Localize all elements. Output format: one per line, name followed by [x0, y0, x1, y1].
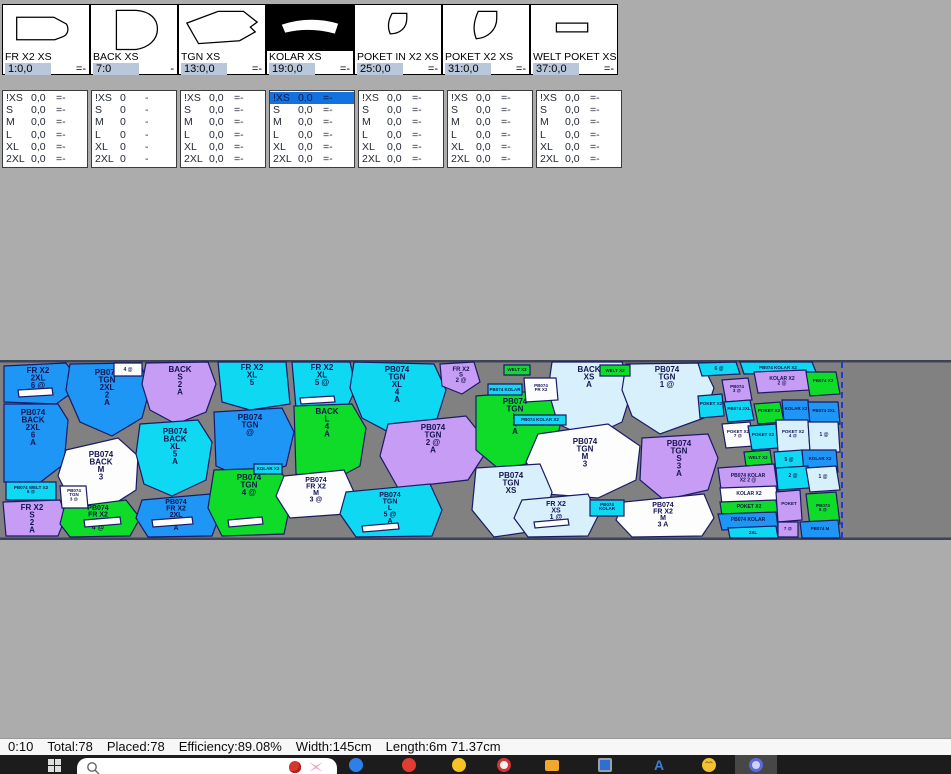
size-count-value: 0,0 [209, 116, 234, 128]
marker-piece[interactable]: PB074 KOLAR X2 [514, 415, 566, 425]
size-label: M [95, 116, 120, 128]
size-label: XL [451, 141, 476, 153]
size-count-suffix: =- [234, 141, 244, 153]
size-count-value: 0,0 [387, 104, 412, 116]
size-count-suffix: =- [56, 92, 66, 104]
svg-text:PB074KOLAR: PB074KOLAR [599, 502, 616, 511]
size-label: M [273, 116, 298, 128]
size-count-suffix: =- [590, 116, 600, 128]
marker-making-app-window: { "pieces_panel": { "cards": [ {"name":"… [0, 0, 951, 774]
size-column-1: !XS0-S0-M0-L0-XL0-2XL0- [91, 90, 177, 168]
marker-piece[interactable]: PB074 KOLAR [488, 384, 522, 395]
marker-piece[interactable]: 4 @ [114, 363, 142, 376]
size-label: XL [6, 141, 31, 153]
svg-text:2 @: 2 @ [788, 473, 797, 479]
piece-card-name: FR X2 XS [3, 51, 89, 63]
size-row-s[interactable]: S0,0=- [270, 104, 354, 116]
marker-piece[interactable]: PB074 2XL [724, 400, 754, 422]
size-label: 2XL [184, 153, 209, 165]
svg-text:POKET X2: POKET X2 [758, 408, 781, 413]
size-column-3: !XS0,0=-S0,0=-M0,0=-L0,0=-XL0,0=-2XL0,0=… [269, 90, 355, 168]
app-letter-a-icon[interactable]: A [652, 758, 666, 772]
size-count-suffix: =- [234, 116, 244, 128]
size-row-xl[interactable]: XL0,0=- [181, 141, 265, 153]
size-label: S [451, 104, 476, 116]
marker-piece[interactable]: WELT X2 [504, 365, 530, 375]
size-row-l[interactable]: L0,0=- [359, 129, 443, 141]
marker-piece[interactable]: PB074 M [800, 520, 840, 538]
size-label: !XS [540, 92, 565, 104]
marker-piece[interactable]: 7 @ [778, 522, 798, 537]
svg-text:KOLAR X2: KOLAR X2 [809, 456, 832, 461]
marker-piece[interactable]: PB074 WELT X26 @ [6, 482, 56, 500]
size-row-m[interactable]: M0,0=- [448, 116, 532, 128]
size-label: 2XL [362, 153, 387, 165]
marker-piece[interactable]: PB074TGN3 @ [60, 486, 88, 508]
svg-text:6 @: 6 @ [714, 366, 723, 372]
size-count-suffix: - [145, 129, 149, 141]
marker-piece[interactable]: KOLAR X2 [254, 464, 282, 474]
size-count-suffix: =- [323, 141, 333, 153]
size-count-value: 0,0 [209, 92, 234, 104]
status-time: 0:10 [8, 739, 33, 755]
marker-piece[interactable]: PB074TGNS3A [640, 434, 718, 500]
size-count-value: 0,0 [387, 92, 412, 104]
svg-text:PB074 KOLAR X2: PB074 KOLAR X2 [759, 365, 797, 370]
size-label: XL [540, 141, 565, 153]
marker-piece[interactable]: PB074KOLAR [590, 500, 624, 516]
size-count-suffix: =- [590, 104, 600, 116]
size-row-xl[interactable]: XL0,0=- [448, 141, 532, 153]
piece-card-name: TGN XS [179, 51, 265, 63]
svg-text:1 @: 1 @ [819, 432, 828, 438]
flower-emoji-icon [289, 761, 301, 773]
size-row-xs[interactable]: !XS0,0=- [270, 92, 354, 104]
size-label: S [95, 104, 120, 116]
size-count-suffix: =- [323, 153, 333, 165]
marker-piece[interactable]: POKET X2 [698, 394, 724, 418]
size-label: XL [273, 141, 298, 153]
status-length: Length:6m 71.37cm [386, 739, 501, 755]
marker-piece[interactable]: PB074FR X22XL6A [136, 494, 220, 537]
size-count-suffix: =- [323, 129, 333, 141]
marker-piece[interactable]: WELT X2 [744, 450, 772, 466]
size-count-suffix: =- [501, 92, 511, 104]
size-count-suffix: =- [234, 129, 244, 141]
size-row-l[interactable]: L0,0=- [3, 129, 87, 141]
piece-card-name: POKET IN X2 XS [355, 51, 441, 63]
size-count-suffix: =- [590, 92, 600, 104]
size-row-xs[interactable]: !XS0,0=- [537, 92, 621, 104]
piece-card-poket-x2-xs[interactable]: POKET X2 XS31:0,0=- [442, 4, 530, 75]
status-placed: Placed:78 [107, 739, 165, 755]
size-row-xs[interactable]: !XS0- [92, 92, 176, 104]
size-count-suffix: =- [412, 104, 422, 116]
piece-card-count-row: 13:0,0=- [179, 63, 265, 75]
size-count-value: 0,0 [387, 153, 412, 165]
active-app-icon[interactable] [749, 758, 763, 772]
size-row-m[interactable]: M0,0=- [537, 116, 621, 128]
size-label: XL [184, 141, 209, 153]
size-label: XL [95, 141, 120, 153]
size-count-suffix: =- [323, 104, 333, 116]
app-window-icon[interactable] [598, 758, 612, 772]
tgn-shape-icon [179, 5, 265, 51]
size-count-value: 0,0 [476, 141, 501, 153]
size-count-suffix: =- [412, 141, 422, 153]
size-count-value: 0,0 [476, 92, 501, 104]
piece-card-count-row: 25:0,0=- [355, 63, 441, 75]
size-count-suffix: - [145, 116, 149, 128]
size-row-xs[interactable]: !XS0,0=- [3, 92, 87, 104]
taskbar: Aᵔᵔ [0, 755, 951, 774]
size-label: 2XL [95, 153, 120, 165]
size-row-s[interactable]: S0- [92, 104, 176, 116]
app-yellow-icon[interactable] [452, 758, 466, 772]
svg-text:KOLAR X2: KOLAR X2 [257, 466, 280, 471]
size-count-value: 0,0 [565, 92, 590, 104]
marker-piece[interactable]: 1 @ [808, 422, 840, 452]
size-count-value: 0,0 [298, 116, 323, 128]
size-label: 2XL [540, 153, 565, 165]
svg-text:5 @: 5 @ [784, 457, 793, 463]
size-count-value: 0 [120, 129, 145, 141]
piece-card-poket-in-x2-xs[interactable]: POKET IN X2 XS25:0,0=- [354, 4, 442, 75]
size-count-value: 0,0 [387, 116, 412, 128]
size-label: XL [362, 141, 387, 153]
piece-card-welt-poket-xs[interactable]: WELT POKET XS37:0,0=- [530, 4, 618, 75]
size-row-s[interactable]: S0,0=- [448, 104, 532, 116]
marker-canvas[interactable]: FR X22XL6 @APB074TGN2XL2APB074BACK2XL6AP… [0, 360, 951, 540]
size-label: !XS [362, 92, 387, 104]
size-label: M [451, 116, 476, 128]
file-explorer-icon[interactable] [545, 760, 559, 771]
size-count-value: 0,0 [31, 92, 56, 104]
size-row-l[interactable]: L0- [92, 129, 176, 141]
size-column-4: !XS0,0=-S0,0=-M0,0=-L0,0=-XL0,0=-2XL0,0=… [358, 90, 444, 168]
piece-card-name: KOLAR XS [267, 51, 353, 63]
svg-text:PB074 2XL: PB074 2XL [727, 406, 751, 411]
piece-card-count-row: 7:0- [91, 63, 177, 75]
piece-card-count-suffix: - [170, 63, 175, 75]
size-label: 2XL [451, 153, 476, 165]
status-width: Width:145cm [296, 739, 372, 755]
size-row-l[interactable]: L0,0=- [181, 129, 265, 141]
marker-piece[interactable]: PB0743 @ [722, 378, 752, 402]
size-count-suffix: =- [501, 153, 511, 165]
svg-text:PB074 KOLAR: PB074 KOLAR [489, 387, 521, 392]
size-count-suffix: =- [323, 116, 333, 128]
size-count-suffix: - [145, 141, 149, 153]
size-row-2xl[interactable]: 2XL0,0=- [537, 153, 621, 165]
size-row-2xl[interactable]: 2XL0,0=- [359, 153, 443, 165]
size-row-s[interactable]: S0,0=- [537, 104, 621, 116]
size-count-value: 0,0 [565, 104, 590, 116]
size-label: S [6, 104, 31, 116]
svg-text:POKET: POKET [781, 501, 797, 506]
marker-piece[interactable]: FR X22XL6 @A [4, 363, 74, 404]
piece-card-count-suffix: =- [76, 63, 87, 75]
size-label: S [184, 104, 209, 116]
size-row-s[interactable]: S0,0=- [181, 104, 265, 116]
size-row-xl[interactable]: XL0,0=- [270, 141, 354, 153]
size-row-m[interactable]: M0,0=- [3, 116, 87, 128]
marker-piece[interactable]: PB074 2XL [808, 402, 840, 424]
svg-text:POKET X2: POKET X2 [700, 401, 723, 406]
size-count-suffix: =- [56, 141, 66, 153]
size-row-2xl[interactable]: 2XL0,0=- [448, 153, 532, 165]
size-label: L [95, 129, 120, 141]
svg-text:4 @: 4 @ [123, 367, 132, 373]
edge-browser-icon[interactable] [349, 758, 363, 772]
size-count-value: 0,0 [209, 153, 234, 165]
size-count-suffix: - [145, 104, 149, 116]
size-count-suffix: =- [56, 153, 66, 165]
bow-emoji-icon [309, 762, 323, 772]
marker-piece[interactable]: PB074 X2 [806, 372, 840, 396]
marker-piece[interactable]: 6 @ [698, 362, 740, 376]
size-row-l[interactable]: L0,0=- [270, 129, 354, 141]
svg-text:PB074 KOLAR: PB074 KOLAR [731, 517, 766, 523]
size-column-2: !XS0,0=-S0,0=-M0,0=-L0,0=-XL0,0=-2XL0,0=… [180, 90, 266, 168]
size-count-value: 0,0 [209, 104, 234, 116]
piece-card-name: WELT POKET XS [531, 51, 617, 63]
piece-card-count-value: 31:0,0 [445, 63, 491, 75]
app-red-white-icon[interactable] [497, 758, 511, 772]
marker-piece[interactable]: FR X2XS1 @ [514, 494, 598, 537]
size-label: M [540, 116, 565, 128]
size-count-suffix: =- [590, 153, 600, 165]
size-count-suffix: - [145, 153, 149, 165]
size-count-value: 0,0 [476, 129, 501, 141]
marker-piece[interactable]: WELT X2 [600, 365, 630, 376]
browser-red-icon[interactable] [402, 758, 416, 772]
size-label: 2XL [6, 153, 31, 165]
size-row-s[interactable]: S0,0=- [3, 104, 87, 116]
size-count-value: 0,0 [387, 141, 412, 153]
size-row-l[interactable]: L0,0=- [537, 129, 621, 141]
marker-piece[interactable]: 1 @ [806, 466, 840, 492]
size-row-xl[interactable]: XL0,0=- [3, 141, 87, 153]
marker-piece[interactable] [300, 396, 335, 404]
size-count-value: 0,0 [298, 129, 323, 141]
size-count-value: 0 [120, 141, 145, 153]
piece-card-kolar-xs[interactable]: KOLAR XS19:0,0=- [266, 4, 354, 75]
size-table: !XS0,0=-S0,0=-M0,0=-L0,0=-XL0,0=-2XL0,0=… [2, 90, 622, 168]
size-count-suffix: =- [323, 92, 333, 104]
size-row-xl[interactable]: XL0,0=- [359, 141, 443, 153]
svg-text:2XL: 2XL [749, 530, 758, 535]
size-count-suffix: =- [412, 129, 422, 141]
size-row-2xl[interactable]: 2XL0,0=- [270, 153, 354, 165]
size-label: M [184, 116, 209, 128]
size-count-value: 0,0 [31, 129, 56, 141]
size-count-suffix: =- [590, 129, 600, 141]
size-count-value: 0,0 [565, 116, 590, 128]
piece-card-count-value: 7:0 [93, 63, 139, 75]
svg-text:7 @: 7 @ [784, 526, 793, 531]
size-column-5: !XS0,0=-S0,0=-M0,0=-L0,0=-XL0,0=-2XL0,0=… [447, 90, 533, 168]
svg-text:PB074 KOLAR X2: PB074 KOLAR X2 [521, 417, 559, 422]
marker-piece[interactable]: KOLAR X2 [782, 400, 810, 422]
size-count-suffix: =- [501, 104, 511, 116]
size-count-value: 0,0 [476, 153, 501, 165]
size-row-xs[interactable]: !XS0,0=- [359, 92, 443, 104]
size-label: 2XL [273, 153, 298, 165]
size-row-xl[interactable]: XL0- [92, 141, 176, 153]
size-row-2xl[interactable]: 2XL0- [92, 153, 176, 165]
size-label: !XS [184, 92, 209, 104]
size-count-suffix: =- [412, 116, 422, 128]
search-icon [86, 761, 101, 774]
svg-text:PB074FR X2: PB074FR X2 [534, 383, 548, 392]
piece-card-count-value: 1:0,0 [5, 63, 51, 75]
size-label: S [362, 104, 387, 116]
svg-text:WELT X2: WELT X2 [507, 367, 527, 372]
piece-card-count-suffix: =- [604, 63, 615, 75]
marker-piece[interactable]: PB074FR X2 [524, 378, 558, 402]
size-row-m[interactable]: M0,0=- [181, 116, 265, 128]
size-label: !XS [451, 92, 476, 104]
size-count-value: 0,0 [298, 92, 323, 104]
piece-card-count-value: 19:0,0 [269, 63, 315, 75]
size-count-suffix: =- [501, 129, 511, 141]
status-efficiency: Efficiency:89.08% [179, 739, 282, 755]
windows-start-button[interactable] [48, 759, 61, 772]
size-count-value: 0,0 [565, 153, 590, 165]
size-row-m[interactable]: M0,0=- [270, 116, 354, 128]
svg-text:POKET X2: POKET X2 [752, 432, 775, 437]
size-label: L [273, 129, 298, 141]
piece-card-count-value: 37:0,0 [533, 63, 579, 75]
piece-card-count-row: 1:0,0=- [3, 63, 89, 75]
size-count-suffix: =- [501, 116, 511, 128]
piece-card-name: BACK XS [91, 51, 177, 63]
back-shape-icon [91, 5, 177, 51]
size-count-suffix: =- [412, 153, 422, 165]
size-count-suffix: =- [234, 92, 244, 104]
kolar-shape-icon [267, 5, 353, 51]
size-label: !XS [95, 92, 120, 104]
size-count-value: 0 [120, 104, 145, 116]
taskbar-search-input[interactable] [77, 758, 337, 774]
size-row-m[interactable]: M0,0=- [359, 116, 443, 128]
piece-card-fr-x2-xs[interactable]: FR X2 XS1:0,0=- [2, 4, 90, 75]
piece-card-count-suffix: =- [252, 63, 263, 75]
poket-shape-icon [443, 5, 529, 51]
size-label: M [362, 116, 387, 128]
size-count-value: 0,0 [298, 153, 323, 165]
size-row-xs[interactable]: !XS0,0=- [448, 92, 532, 104]
size-row-l[interactable]: L0,0=- [448, 129, 532, 141]
marker-piece[interactable]: KOLAR X22 @ [754, 370, 810, 393]
poket_in-shape-icon [355, 5, 441, 51]
piece-card-count-suffix: =- [428, 63, 439, 75]
size-row-xl[interactable]: XL0,0=- [537, 141, 621, 153]
size-label: !XS [6, 92, 31, 104]
pieces-panel: FR X2 XS1:0,0=-BACK XS7:0-TGN XS13:0,0=-… [2, 4, 618, 75]
size-count-value: 0,0 [31, 153, 56, 165]
size-count-suffix: - [145, 92, 149, 104]
size-count-suffix: =- [412, 92, 422, 104]
size-count-value: 0,0 [31, 116, 56, 128]
size-label: L [184, 129, 209, 141]
size-count-value: 0,0 [476, 104, 501, 116]
piece-card-count-value: 13:0,0 [181, 63, 227, 75]
size-label: L [451, 129, 476, 141]
size-count-value: 0,0 [31, 141, 56, 153]
size-count-value: 0,0 [565, 141, 590, 153]
marker-piece[interactable]: 2 @ [776, 466, 810, 490]
svg-text:PB074 M: PB074 M [811, 526, 830, 531]
size-count-value: 0,0 [209, 141, 234, 153]
size-row-2xl[interactable]: 2XL0,0=- [181, 153, 265, 165]
size-label: M [6, 116, 31, 128]
size-count-value: 0,0 [565, 129, 590, 141]
svg-text:POKET X2: POKET X2 [737, 504, 762, 510]
size-row-2xl[interactable]: 2XL0,0=- [3, 153, 87, 165]
marker-piece[interactable]: POKET X2 [748, 424, 778, 450]
size-count-value: 0,0 [298, 104, 323, 116]
marker-piece[interactable] [18, 388, 53, 397]
size-row-xs[interactable]: !XS0,0=- [181, 92, 265, 104]
marker-piece[interactable]: POKET X24 @ [776, 420, 810, 452]
marker-piece[interactable]: POKET [776, 490, 802, 522]
piece-card-count-row: 37:0,0=- [531, 63, 617, 75]
size-label: L [362, 129, 387, 141]
size-count-suffix: =- [56, 116, 66, 128]
size-count-value: 0,0 [31, 104, 56, 116]
size-row-m[interactable]: M0- [92, 116, 176, 128]
size-count-value: 0,0 [298, 141, 323, 153]
size-count-value: 0,0 [387, 129, 412, 141]
size-count-suffix: =- [56, 104, 66, 116]
svg-text:1 @: 1 @ [818, 474, 827, 480]
size-count-value: 0 [120, 92, 145, 104]
size-label: S [540, 104, 565, 116]
piece-card-count-suffix: =- [516, 63, 527, 75]
marker-piece[interactable]: FR X2XL5 [218, 362, 290, 410]
emoji-smiley-icon[interactable]: ᵔᵔ [702, 758, 716, 772]
piece-card-count-row: 19:0,0=- [267, 63, 353, 75]
marker-piece[interactable]: 2XL [728, 526, 778, 538]
size-count-suffix: =- [234, 104, 244, 116]
svg-text:KOLAR X2: KOLAR X2 [736, 491, 762, 497]
size-column-0: !XS0,0=-S0,0=-M0,0=-L0,0=-XL0,0=-2XL0,0=… [2, 90, 88, 168]
piece-card-count-row: 31:0,0=- [443, 63, 529, 75]
piece-card-count-value: 25:0,0 [357, 63, 403, 75]
size-count-suffix: =- [590, 141, 600, 153]
status-total: Total:78 [47, 739, 93, 755]
size-count-suffix: =- [234, 153, 244, 165]
status-bar: 0:10 Total:78 Placed:78 Efficiency:89.08… [0, 738, 951, 755]
piece-card-back-xs[interactable]: BACK XS7:0- [90, 4, 178, 75]
size-row-s[interactable]: S0,0=- [359, 104, 443, 116]
piece-card-tgn-xs[interactable]: TGN XS13:0,0=- [178, 4, 266, 75]
size-count-value: 0 [120, 153, 145, 165]
marker-piece[interactable]: FR X2S2A [3, 500, 66, 536]
size-label: S [273, 104, 298, 116]
size-count-value: 0,0 [476, 116, 501, 128]
size-label: L [6, 129, 31, 141]
size-count-value: 0 [120, 116, 145, 128]
size-count-value: 0,0 [209, 129, 234, 141]
welt-shape-icon [531, 5, 617, 51]
size-label: L [540, 129, 565, 141]
piece-card-name: POKET X2 XS [443, 51, 529, 63]
svg-text:WELT X2: WELT X2 [605, 368, 625, 373]
fr-shape-icon [3, 5, 89, 51]
